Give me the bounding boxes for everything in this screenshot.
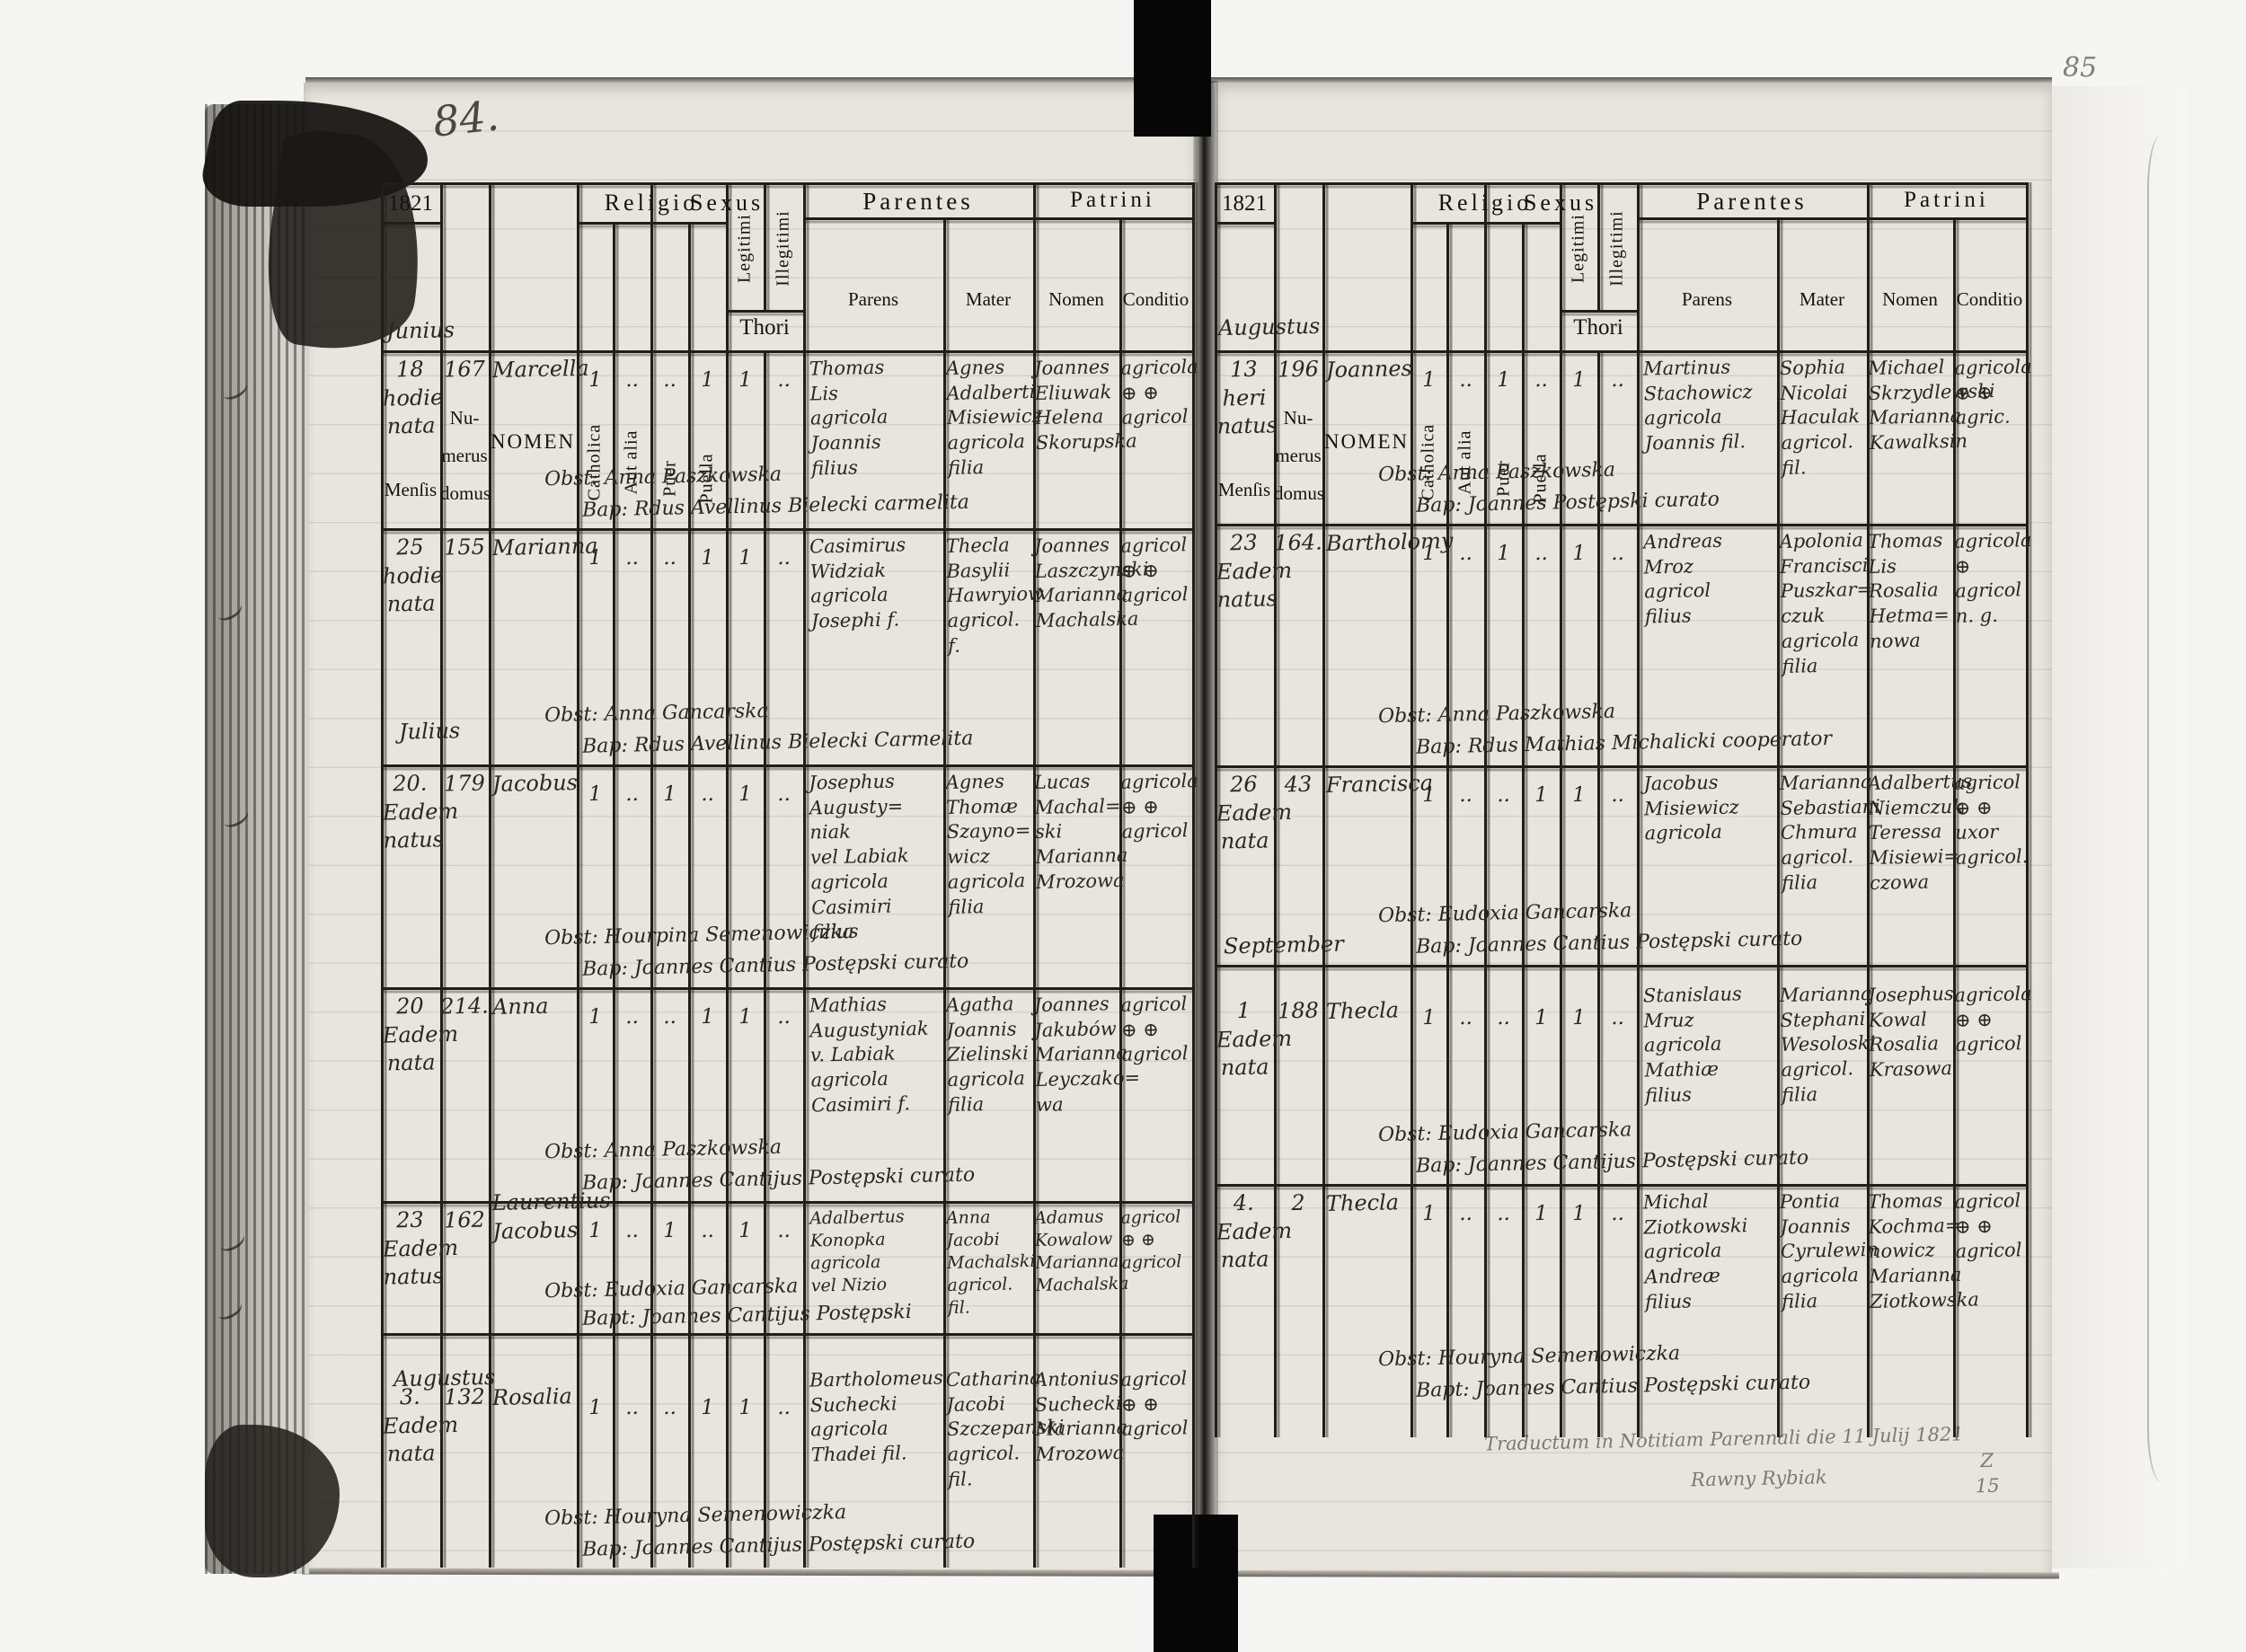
entry-date: 18 hodie nata bbox=[382, 355, 439, 441]
patrini-label: Patrini bbox=[1867, 188, 2026, 213]
register-entry: 1 Eadem nata 188 Thecla 1 .. .. 1 1 .. S… bbox=[1215, 965, 2028, 1184]
entry-conditio: agricola ⊕ ⊕ agricol bbox=[1120, 769, 1194, 845]
entry-conditio: agricol ⊕ ⊕ agricol bbox=[1120, 1206, 1194, 1275]
illegitimi-label: Illegitimi bbox=[774, 181, 794, 316]
register-entry: 18 hodie nata 167 Marcella 1 .. .. 1 1 .… bbox=[381, 350, 1194, 528]
tick-aut-alia: .. bbox=[1447, 782, 1485, 809]
tick-puella: .. bbox=[689, 781, 727, 808]
entry-name: Marianna bbox=[492, 533, 578, 563]
entry-house-number: 155 bbox=[440, 533, 490, 562]
mater-label: Mater bbox=[1777, 288, 1867, 311]
entry-name: Jacobus bbox=[492, 769, 578, 799]
tick-legitimi: 1 bbox=[727, 367, 765, 394]
register-entry: 26 Eadem nata 43 Francisca 1 .. .. 1 1 .… bbox=[1215, 765, 2028, 965]
entry-obstetrix: Obst: Anna Paszkowska bbox=[544, 1128, 1083, 1166]
tick-catholica: 1 bbox=[578, 544, 614, 572]
entry-parens: Mathias Augustyniak v. Labiak agricola C… bbox=[809, 991, 945, 1118]
entry-baptizans: Bap: Joannes Cantius Postępski curato bbox=[582, 944, 1157, 982]
tick-catholica: 1 bbox=[1411, 782, 1447, 809]
register-entry: 3. Eadem nata 132 Rosalia 1 .. .. 1 1 ..… bbox=[381, 1333, 1194, 1568]
entry-name: Thecla bbox=[1326, 996, 1411, 1027]
entry-baptizans: Bap: Joannes Cantius Postępski curato bbox=[1416, 922, 1991, 959]
tick-aut-alia: .. bbox=[614, 367, 651, 394]
tick-puella: 1 bbox=[1523, 782, 1561, 809]
tick-legitimi: 1 bbox=[727, 1003, 765, 1031]
entry-baptizans: Bap: Rdus Avellinus Bielecki carmelita bbox=[582, 485, 1157, 523]
entry-baptizans: Bap: Joannes Cantijus Postępski curato bbox=[582, 1158, 1157, 1196]
entry-name: Bartholomy bbox=[1326, 528, 1411, 559]
entry-obstetrix: Obst: Eudoxia Gancarska bbox=[1378, 1111, 1917, 1149]
entry-obstetrix: Obst: Hourpina Semenowiczka bbox=[544, 914, 1083, 952]
table-rule bbox=[381, 222, 440, 225]
entry-mater: Catharina Jacobi Szczepanski agricol. fi… bbox=[946, 1366, 1033, 1493]
entry-conditio: agricola ⊕ ⊕ agricol bbox=[1120, 355, 1194, 431]
month-annotation: Augustus bbox=[1218, 313, 1321, 343]
entry-name: Joannes bbox=[1326, 355, 1411, 385]
entry-obstetrix: Obst: Eudoxia Gancarska bbox=[1378, 892, 1917, 930]
tick-puella: 1 bbox=[1523, 1200, 1561, 1228]
tick-puer: .. bbox=[651, 544, 689, 572]
entry-patrini: Lucas Machal= ski Marianna Mrozowa bbox=[1034, 769, 1121, 896]
tick-legitimi: 1 bbox=[727, 544, 765, 572]
entry-house-number: 214. bbox=[440, 992, 490, 1021]
tick-aut-alia: .. bbox=[614, 781, 651, 808]
month-annotation: Junius bbox=[386, 316, 455, 346]
entry-patrini: Michael Skrzydlewski Marianna Kawalksin bbox=[1868, 355, 1954, 456]
entry-mater: Thecla Basylii Hawryiow agricol. f. bbox=[946, 533, 1033, 659]
entry-conditio: agricol ⊕ ⊕ agricol bbox=[1120, 1366, 1194, 1443]
tick-legitimi: 1 bbox=[1561, 1200, 1598, 1228]
register-entry: 20. Eadem natus 179 Jacobus 1 .. 1 .. 1 … bbox=[381, 764, 1194, 987]
entry-house-number: 2 bbox=[1274, 1188, 1323, 1218]
conditio-label: Conditio bbox=[1119, 288, 1192, 311]
table-rule bbox=[1215, 222, 1274, 225]
tick-aut-alia: .. bbox=[1447, 540, 1485, 568]
tick-catholica: 1 bbox=[1411, 367, 1447, 394]
tick-puella: .. bbox=[1523, 540, 1561, 568]
entry-date: 20 Eadem nata bbox=[382, 992, 439, 1078]
entry-obstetrix: Obst: Houryna Semenowiczka bbox=[544, 1495, 1083, 1533]
entry-conditio: agricola ⊕ ⊕ agricol bbox=[1954, 982, 2028, 1058]
tick-legitimi: 1 bbox=[1561, 782, 1598, 809]
tick-puer: .. bbox=[651, 1394, 689, 1422]
tick-illegitimi: .. bbox=[1598, 1200, 1638, 1228]
parens-label: Parens bbox=[1637, 288, 1777, 311]
entry-parens: Martinus Stachowicz agricola Joannis fil… bbox=[1643, 354, 1778, 456]
tick-puella: 1 bbox=[689, 367, 727, 394]
page-number-right: 85 bbox=[2063, 52, 2097, 84]
tick-aut-alia: .. bbox=[614, 544, 651, 572]
tick-illegitimi: .. bbox=[765, 781, 804, 808]
tick-aut-alia: .. bbox=[614, 1217, 651, 1245]
tick-illegitimi: .. bbox=[765, 367, 804, 394]
tick-illegitimi: .. bbox=[1598, 367, 1638, 394]
entry-parens: Stanislaus Mruz agricola Mathiæ filius bbox=[1643, 981, 1779, 1109]
entry-date: 3. Eadem nata bbox=[382, 1383, 439, 1469]
entry-mater: Pontia Joannis Cyrulewin agricola filia bbox=[1780, 1188, 1867, 1315]
entry-obstetrix: Obst: Anna Paszkowska bbox=[544, 455, 1083, 493]
tick-aut-alia: .. bbox=[1447, 367, 1485, 394]
parentes-label: Parentes bbox=[1637, 188, 1867, 216]
tick-puer: 1 bbox=[651, 781, 689, 808]
entry-date: 13 heri natus bbox=[1216, 355, 1273, 441]
tick-illegitimi: .. bbox=[765, 1003, 804, 1031]
entry-house-number: 196 bbox=[1274, 355, 1323, 384]
tick-legitimi: 1 bbox=[727, 1394, 765, 1422]
tick-puer: 1 bbox=[1485, 540, 1523, 568]
entry-obstetrix: Obst: Anna Gancarska bbox=[544, 692, 1083, 729]
tick-puer: 1 bbox=[1485, 367, 1523, 394]
entry-date: 4. Eadem nata bbox=[1216, 1188, 1273, 1275]
entry-patrini: Joannes Eliuwak Helena Skorupska bbox=[1034, 355, 1120, 456]
entry-patrini: Joannes Laszczynski Marianna Machalska bbox=[1034, 533, 1120, 634]
patrini-nomen-label: Nomen bbox=[1867, 288, 1953, 311]
patrini-nomen-label: Nomen bbox=[1033, 288, 1119, 311]
entry-mater: Marianna Sebastiani Chmura agricol. fili… bbox=[1780, 770, 1867, 897]
tick-puer: .. bbox=[651, 1003, 689, 1031]
register-entry: 20 Eadem nata 214. Anna 1 .. .. 1 1 .. M… bbox=[381, 987, 1194, 1201]
parentes-label: Parentes bbox=[803, 188, 1033, 216]
entry-baptizans: Bap: Rdus Mathias Michalicki cooperator bbox=[1416, 722, 1991, 760]
year-label: 1821 bbox=[1215, 191, 1274, 216]
thori-label: Thori bbox=[1560, 315, 1637, 340]
right-register-table: 1821 Menſis Nu- merus domus NOMEN Religi… bbox=[1215, 182, 2028, 1437]
entry-mater: Marianna Stephani Wesoloski agricol. fil… bbox=[1780, 982, 1867, 1109]
register-entry: 4. Eadem nata 2 Thecla 1 .. .. 1 1 .. Mi… bbox=[1215, 1184, 2028, 1437]
entry-patrini: Adalbertus Niemczuk Teressa Misiewi= czo… bbox=[1868, 770, 1955, 897]
tick-illegitimi: .. bbox=[1598, 1004, 1638, 1032]
entry-date: 26 Eadem nata bbox=[1216, 770, 1273, 856]
table-rule bbox=[1637, 217, 2026, 220]
register-entry: 13 heri natus 196 Joannes 1 .. 1 .. 1 ..… bbox=[1215, 350, 2028, 524]
tick-puer: 1 bbox=[651, 1217, 689, 1245]
tick-catholica: 1 bbox=[578, 367, 614, 394]
entry-baptizans: Bap: Joannes Cantijus Postępski curato bbox=[1416, 1141, 1991, 1179]
tick-puella: .. bbox=[1523, 367, 1561, 394]
entry-house-number: 167 bbox=[440, 355, 490, 384]
conditio-label: Conditio bbox=[1953, 288, 2026, 311]
parens-label: Parens bbox=[803, 288, 943, 311]
tick-legitimi: 1 bbox=[1561, 367, 1598, 394]
entry-conditio: agricol ⊕ ⊕ agricol bbox=[1954, 1188, 2028, 1265]
register-entry: 23 Eadem natus 162 Laurentius Jacobus 1 … bbox=[381, 1201, 1194, 1333]
tick-puer: .. bbox=[1485, 1200, 1523, 1228]
tick-catholica: 1 bbox=[578, 1394, 614, 1422]
entry-obstetrix: Obst: Houryna Semenowiczka bbox=[1378, 1336, 1917, 1374]
tick-legitimi: 1 bbox=[727, 1217, 765, 1245]
tick-puella: 1 bbox=[1523, 1004, 1561, 1032]
entry-conditio: agricol ⊕ ⊕ uxor agricol. bbox=[1954, 770, 2028, 871]
tick-illegitimi: .. bbox=[765, 1394, 804, 1422]
entry-date: 23 Eadem natus bbox=[1216, 528, 1273, 614]
tick-catholica: 1 bbox=[1411, 540, 1447, 568]
entry-mater: Agatha Joannis Zielinski agricola filia bbox=[946, 992, 1033, 1118]
year-label: 1821 bbox=[381, 191, 440, 216]
entry-date: 1 Eadem nata bbox=[1216, 996, 1273, 1082]
tick-aut-alia: .. bbox=[614, 1003, 651, 1031]
entry-conditio: agricol ⊕ ⊕ agricol bbox=[1120, 992, 1194, 1068]
entry-mater: Agnes Thomæ Szayno= wicz agricola filia bbox=[945, 769, 1032, 920]
tick-puer: .. bbox=[651, 367, 689, 394]
entry-obstetrix: Obst: Anna Paszkowska bbox=[1378, 693, 1917, 730]
tick-aut-alia: .. bbox=[614, 1394, 651, 1422]
entry-house-number: 164. bbox=[1274, 528, 1323, 558]
entry-baptizans: Bap: Rdus Avellinus Bielecki Carmelita bbox=[582, 721, 1157, 759]
entry-parens: Jacobus Misiewicz agricola bbox=[1643, 769, 1778, 846]
entry-baptizans: Bap: Joannes Cantijus Postępski curato bbox=[582, 1524, 1157, 1562]
page-number-left: 84. bbox=[430, 91, 500, 146]
tick-aut-alia: .. bbox=[1447, 1004, 1485, 1032]
entry-obstetrix: Obst: Anna Paszkowska bbox=[1378, 451, 1917, 489]
mater-label: Mater bbox=[943, 288, 1033, 311]
entry-patrini: Thomas Kochma= nowicz Marianna Ziotkowsk… bbox=[1868, 1188, 1955, 1315]
tick-catholica: 1 bbox=[1411, 1200, 1447, 1228]
entry-parens: Andreas Mroz agricol filius bbox=[1643, 527, 1778, 630]
table-rule bbox=[803, 217, 1192, 220]
tick-catholica: 1 bbox=[578, 1003, 614, 1031]
illegitimi-label: Illegitimi bbox=[1607, 181, 1628, 316]
tick-legitimi: 1 bbox=[727, 781, 765, 808]
tick-illegitimi: .. bbox=[765, 1217, 804, 1245]
tick-legitimi: 1 bbox=[1561, 1004, 1598, 1032]
entry-date: 23 Eadem natus bbox=[382, 1206, 439, 1292]
tick-puella: 1 bbox=[689, 544, 727, 572]
tick-puer: .. bbox=[1485, 1004, 1523, 1032]
tick-catholica: 1 bbox=[578, 781, 614, 808]
entry-house-number: 162 bbox=[440, 1206, 490, 1235]
entry-patrini: Joannes Jakubów Marianna Leyczako= wa bbox=[1034, 992, 1121, 1118]
entry-patrini: Josephus Kowal Rosalia Krasowa bbox=[1868, 982, 1954, 1083]
entry-baptizans: Bap: Joannes Postępski curato bbox=[1416, 481, 1991, 518]
patrini-label: Patrini bbox=[1033, 188, 1192, 213]
legitimi-label: Legitimi bbox=[1569, 181, 1589, 316]
tick-catholica: 1 bbox=[578, 1217, 614, 1245]
spine-strap-top bbox=[1134, 0, 1211, 137]
tick-aut-alia: .. bbox=[1447, 1200, 1485, 1228]
entry-parens: Michal Ziotkowski agricola Andreæ filius bbox=[1643, 1188, 1779, 1315]
entry-name: Rosalia bbox=[492, 1383, 578, 1413]
tick-catholica: 1 bbox=[1411, 1004, 1447, 1032]
thori-label: Thori bbox=[726, 315, 803, 340]
tick-illegitimi: .. bbox=[1598, 782, 1638, 809]
entry-house-number: 179 bbox=[440, 769, 490, 799]
register-entry: 23 Eadem natus 164. Bartholomy 1 .. 1 ..… bbox=[1215, 524, 2028, 765]
entry-date: 20. Eadem natus bbox=[382, 769, 439, 855]
entry-baptizans: Bapt: Joannes Cantius Postępski curato bbox=[1416, 1365, 1991, 1403]
register-entry: 25 hodie nata 155 Marianna 1 .. .. 1 1 .… bbox=[381, 528, 1194, 764]
legitimi-label: Legitimi bbox=[735, 181, 756, 316]
register-scan: 84. 85 1821 Me bbox=[0, 0, 2246, 1652]
tick-legitimi: 1 bbox=[1561, 540, 1598, 568]
entry-mater: Apolonia Francisci Puszkar= czuk agricol… bbox=[1779, 528, 1866, 679]
entry-name: Marcella bbox=[492, 355, 578, 385]
entry-parens: Casimirus Widziak agricola Josephi f. bbox=[809, 532, 944, 634]
entry-patrini: Antonius Suchecki Marianna Mrozowa bbox=[1034, 1366, 1120, 1468]
tick-puella: 1 bbox=[689, 1394, 727, 1422]
tick-puella: .. bbox=[689, 1217, 727, 1245]
entry-parens: Bartholomeus Suchecki agricola Thadei fi… bbox=[809, 1365, 944, 1468]
entry-conditio: agricola ⊕ ⊕ agric. bbox=[1954, 355, 2028, 431]
tick-illegitimi: .. bbox=[765, 544, 804, 572]
entry-house-number: 132 bbox=[440, 1383, 490, 1412]
entry-patrini: Thomas Lis Rosalia Hetma= nowa bbox=[1868, 528, 1955, 655]
entry-house-number: 188 bbox=[1274, 996, 1323, 1026]
left-register-table: 1821 Menſis Nu- merus domus NOMEN Religi… bbox=[381, 182, 1194, 1568]
tick-puella: 1 bbox=[689, 1003, 727, 1031]
entry-conditio: agricola ⊕ agricol n. g. bbox=[1954, 528, 2028, 630]
corner-mark: Z 15 bbox=[1959, 1448, 2014, 1499]
tick-puer: .. bbox=[1485, 782, 1523, 809]
entry-conditio: agricol ⊕ ⊕ agricol bbox=[1120, 533, 1194, 609]
entry-name: Thecla bbox=[1326, 1188, 1411, 1219]
entry-house-number: 43 bbox=[1274, 770, 1323, 799]
tick-illegitimi: .. bbox=[1598, 540, 1638, 568]
page-edge-line bbox=[2147, 135, 2176, 1482]
entry-name: Laurentius Jacobus bbox=[491, 1188, 577, 1246]
entry-date: 25 hodie nata bbox=[382, 533, 439, 619]
entry-name: Francisca bbox=[1326, 770, 1411, 800]
entry-name: Anna bbox=[492, 992, 578, 1022]
